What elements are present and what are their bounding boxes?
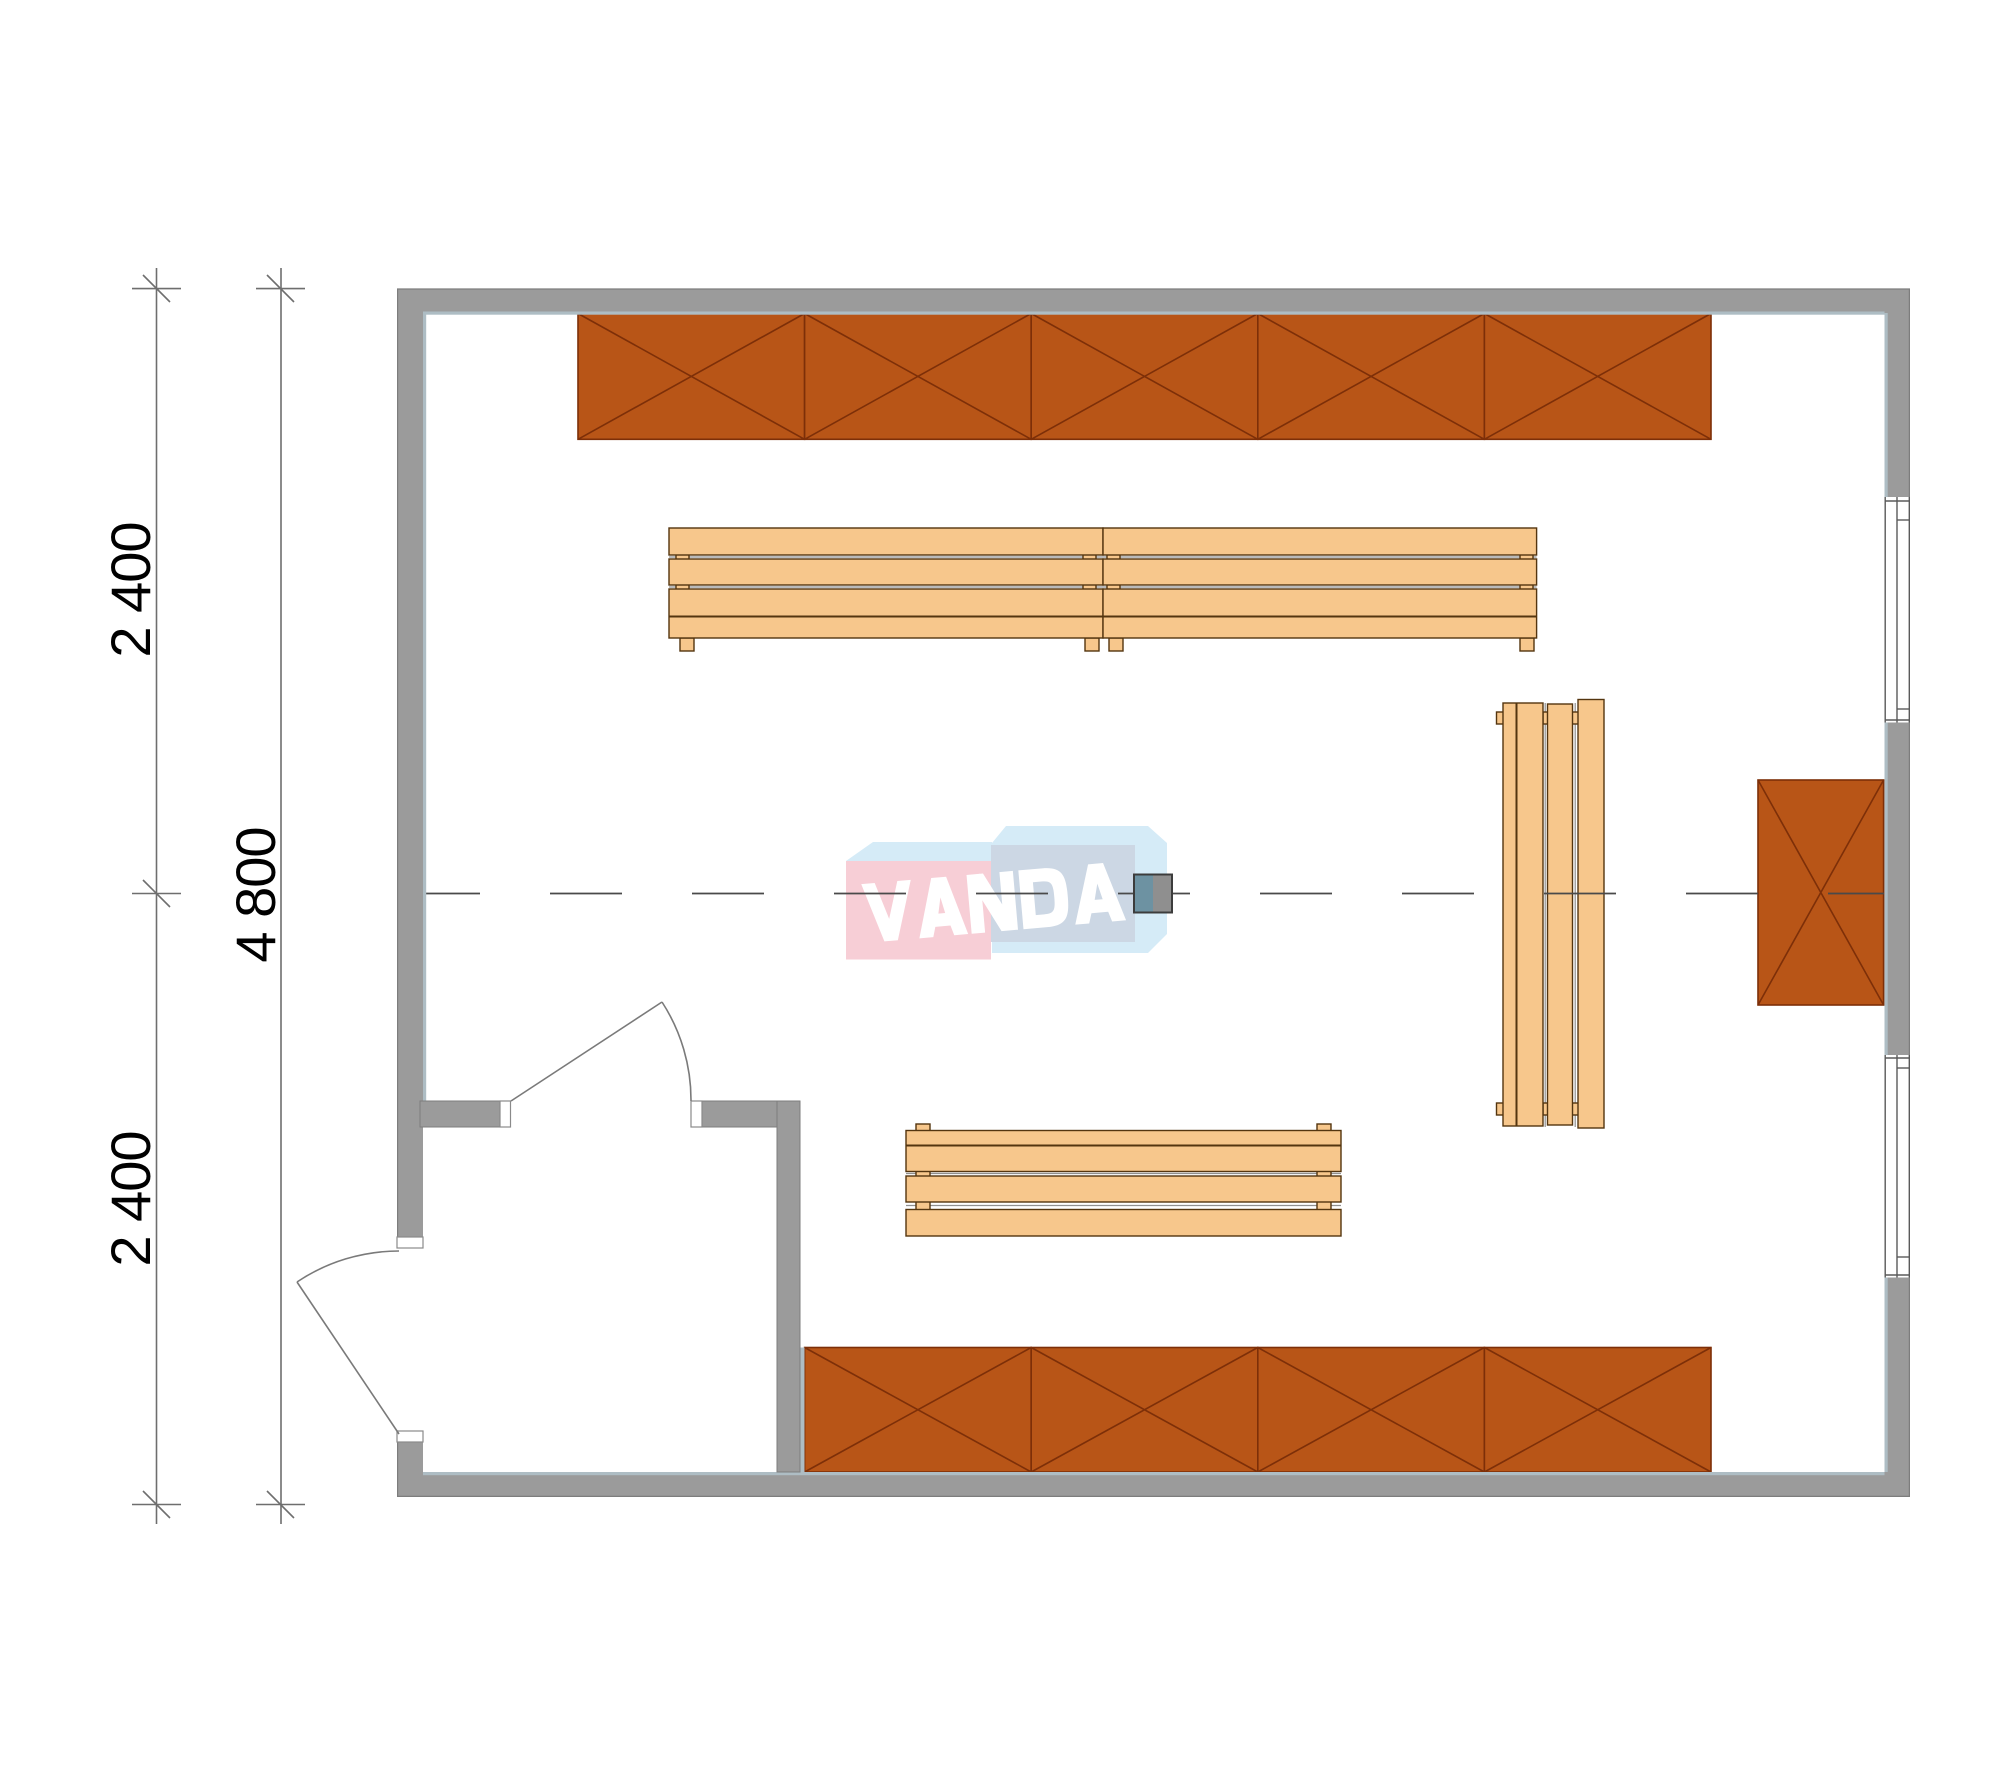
svg-text:4 800: 4 800 (224, 827, 287, 962)
svg-text:2 400: 2 400 (99, 1131, 162, 1266)
svg-text:2 400: 2 400 (99, 522, 162, 657)
